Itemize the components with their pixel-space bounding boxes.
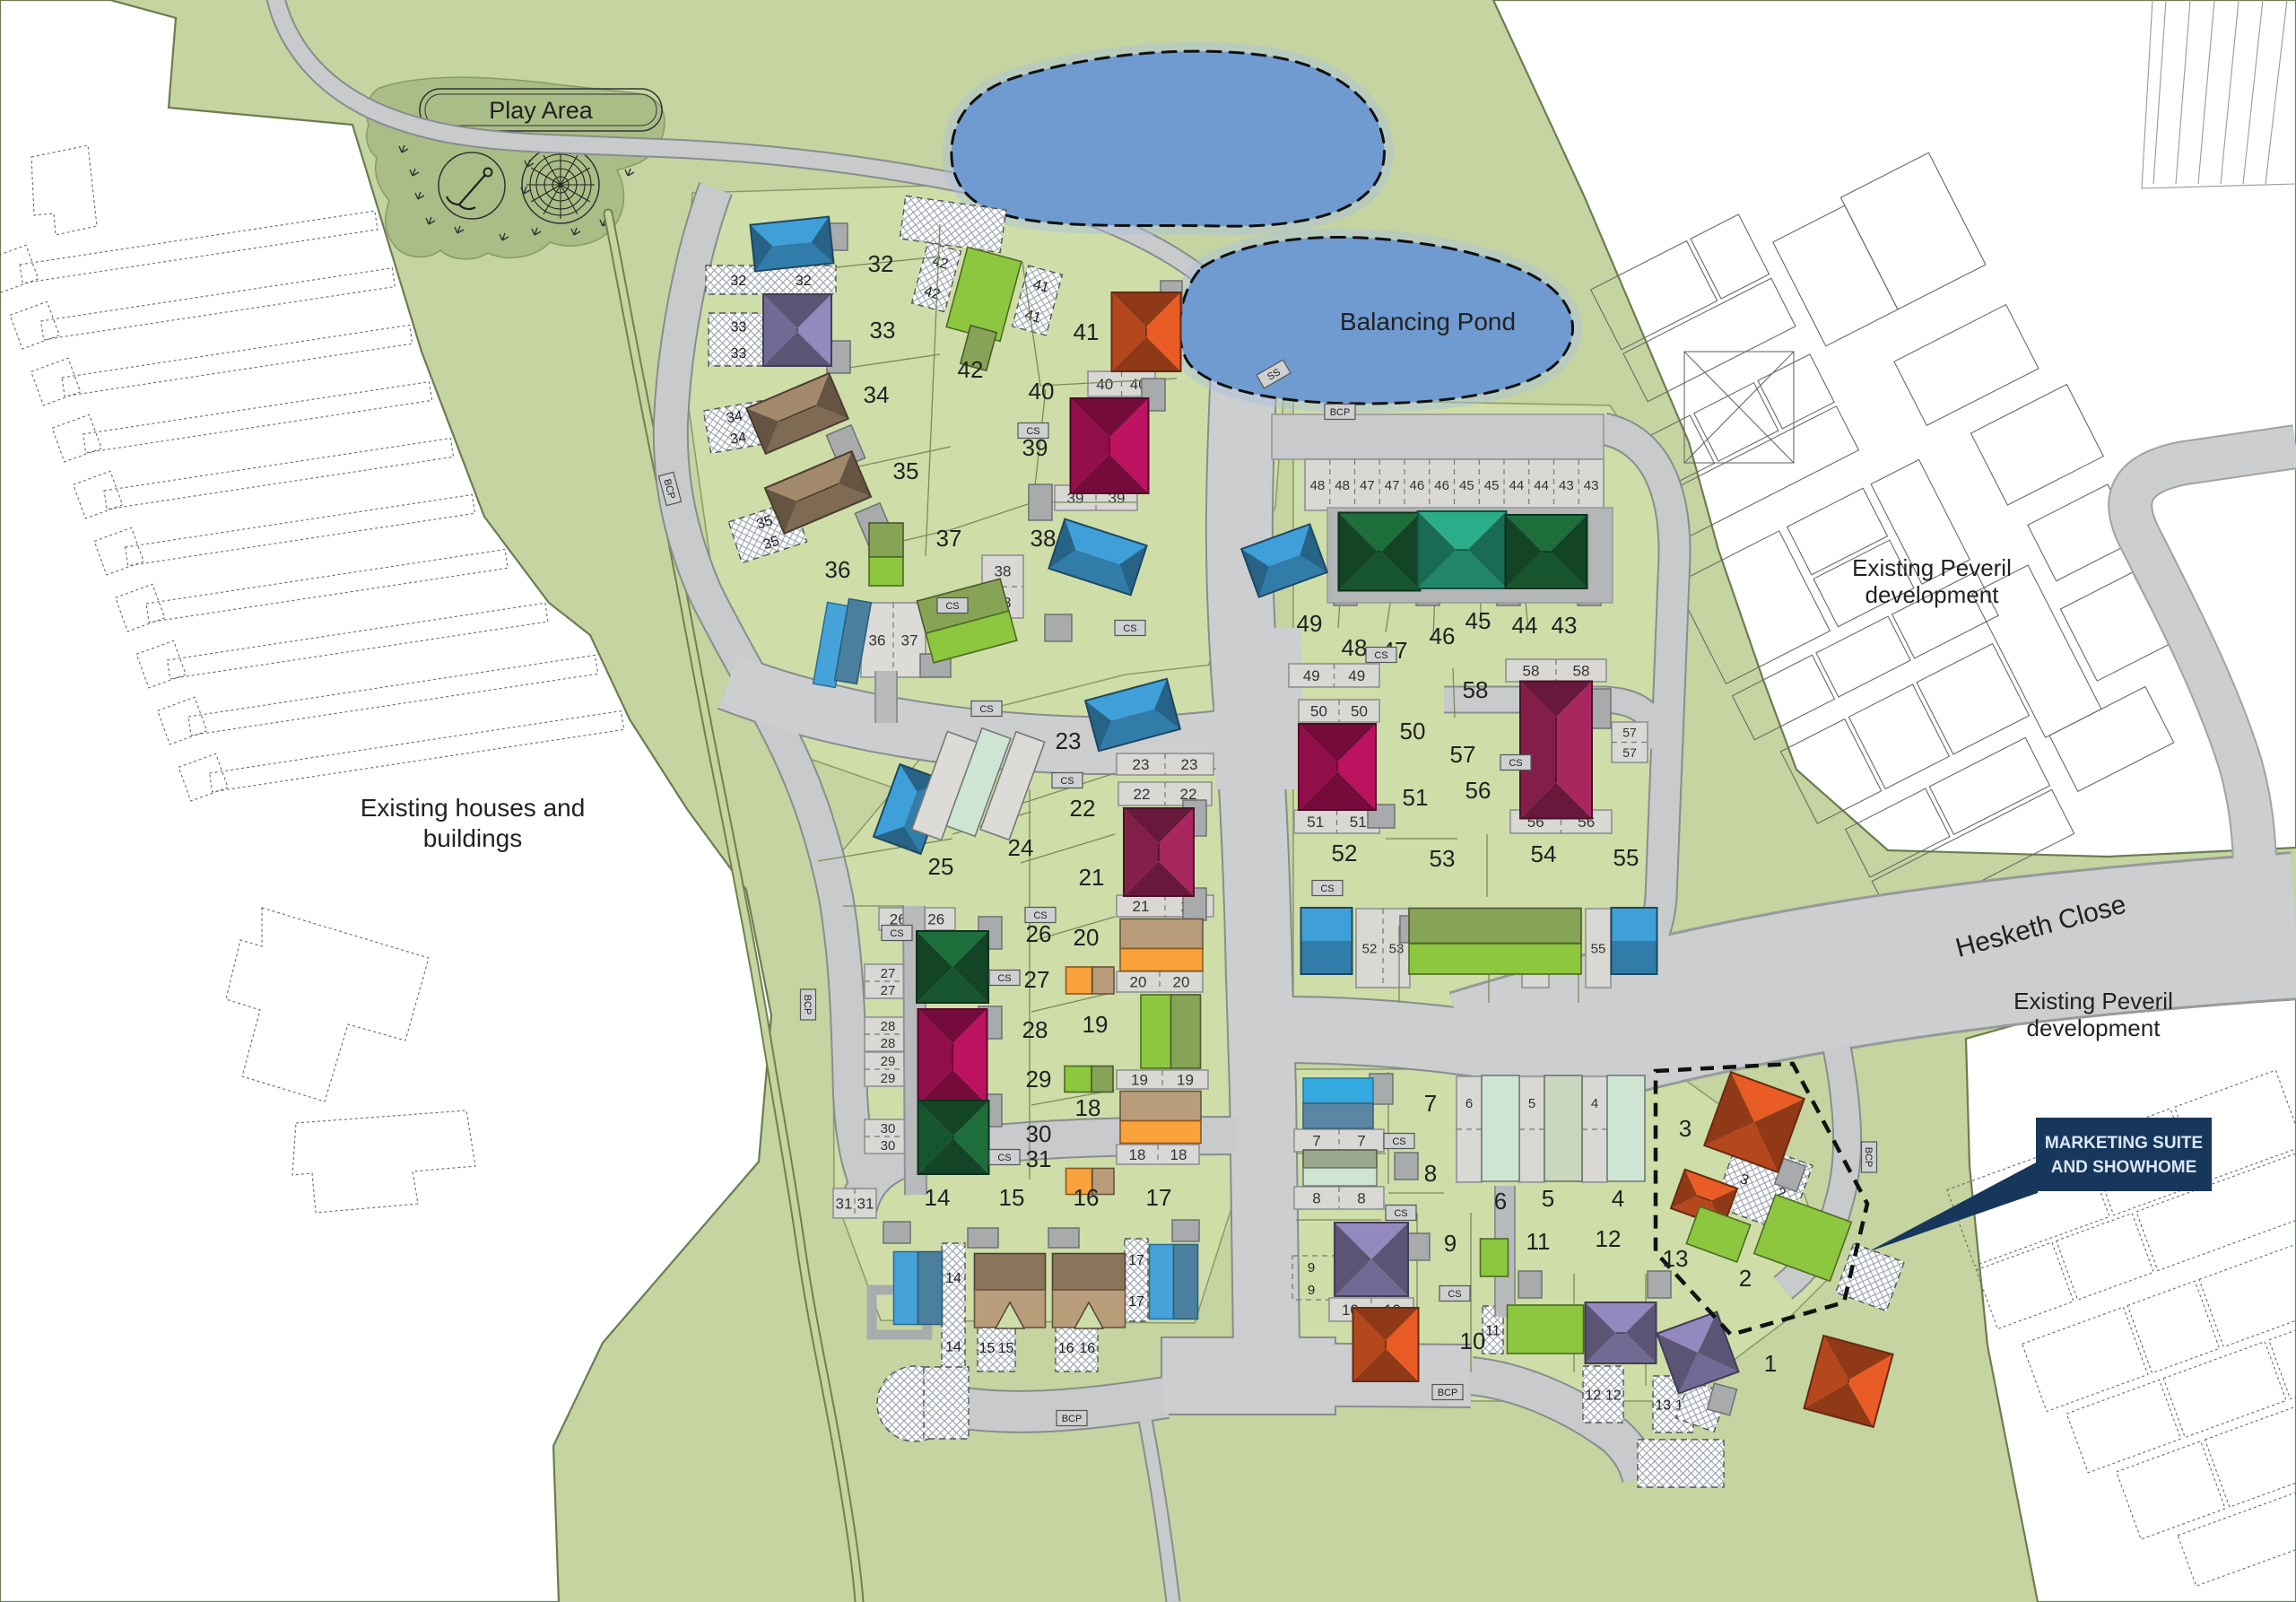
svg-text:41: 41: [1074, 318, 1100, 345]
svg-text:24: 24: [1008, 834, 1034, 861]
svg-text:29: 29: [881, 1054, 896, 1069]
svg-text:55: 55: [1591, 941, 1606, 956]
svg-text:42: 42: [958, 356, 984, 383]
svg-text:Play Area: Play Area: [489, 97, 594, 124]
svg-text:38: 38: [995, 563, 1012, 580]
svg-text:23: 23: [1133, 756, 1150, 773]
svg-text:45: 45: [1459, 478, 1474, 493]
svg-text:49: 49: [1348, 667, 1365, 684]
svg-text:CS: CS: [1448, 1289, 1461, 1300]
svg-text:CS: CS: [890, 928, 903, 939]
svg-text:23: 23: [1056, 727, 1082, 754]
svg-text:32: 32: [868, 250, 894, 277]
svg-text:32: 32: [730, 274, 746, 289]
svg-text:31: 31: [836, 1196, 853, 1213]
svg-text:CS: CS: [1123, 623, 1136, 634]
svg-text:development: development: [1865, 581, 2000, 608]
svg-text:buildings: buildings: [423, 824, 523, 852]
svg-text:CS: CS: [1320, 884, 1334, 894]
svg-text:19: 19: [1083, 1011, 1109, 1038]
svg-text:CS: CS: [997, 1153, 1011, 1163]
svg-text:50: 50: [1310, 703, 1327, 720]
svg-text:48: 48: [1310, 478, 1326, 493]
svg-text:43: 43: [1559, 478, 1574, 493]
svg-text:16: 16: [1079, 1341, 1095, 1356]
svg-text:51: 51: [1350, 814, 1367, 831]
svg-text:17: 17: [1146, 1184, 1172, 1211]
svg-text:47: 47: [1385, 478, 1400, 493]
svg-text:45: 45: [1484, 478, 1500, 493]
svg-text:BCP: BCP: [1062, 1414, 1083, 1424]
svg-text:52: 52: [1332, 840, 1358, 866]
svg-text:7: 7: [1312, 1133, 1320, 1150]
svg-text:18: 18: [1075, 1094, 1101, 1121]
svg-text:27: 27: [881, 983, 896, 998]
svg-text:4: 4: [1591, 1096, 1598, 1111]
svg-text:8: 8: [1357, 1190, 1365, 1207]
svg-text:13: 13: [1655, 1397, 1671, 1413]
svg-text:8: 8: [1424, 1160, 1437, 1187]
svg-text:4: 4: [1612, 1185, 1624, 1212]
svg-text:BCP: BCP: [802, 995, 813, 1015]
svg-text:34: 34: [726, 408, 744, 426]
svg-text:26: 26: [1026, 920, 1052, 947]
svg-text:6: 6: [1465, 1096, 1473, 1111]
svg-text:57: 57: [1622, 725, 1637, 739]
svg-text:7: 7: [1357, 1133, 1365, 1150]
svg-text:57: 57: [1450, 741, 1476, 768]
svg-text:52: 52: [1362, 941, 1378, 956]
svg-text:20: 20: [1130, 974, 1147, 991]
svg-text:CS: CS: [1394, 1208, 1407, 1219]
svg-text:16: 16: [1074, 1184, 1100, 1211]
svg-text:35: 35: [893, 457, 919, 484]
svg-text:21: 21: [1079, 864, 1105, 891]
svg-text:2: 2: [1739, 1265, 1752, 1292]
svg-text:BCP: BCP: [1438, 1388, 1458, 1398]
svg-text:53: 53: [1389, 941, 1405, 956]
svg-text:18: 18: [1170, 1146, 1187, 1163]
svg-text:17: 17: [1128, 1253, 1144, 1268]
svg-text:55: 55: [1613, 844, 1639, 871]
svg-text:49: 49: [1303, 667, 1320, 684]
svg-text:Existing houses and: Existing houses and: [361, 794, 586, 822]
svg-text:21: 21: [1133, 898, 1150, 915]
svg-text:MARKETING SUITE: MARKETING SUITE: [2045, 1134, 2203, 1153]
svg-text:Balancing Pond: Balancing Pond: [1340, 308, 1516, 335]
svg-text:30: 30: [1026, 1120, 1052, 1147]
svg-text:31: 31: [857, 1196, 874, 1213]
svg-text:33: 33: [731, 346, 747, 361]
svg-text:58: 58: [1573, 663, 1590, 680]
svg-text:20: 20: [1074, 924, 1100, 951]
svg-text:58: 58: [1463, 676, 1489, 703]
svg-text:40: 40: [1029, 378, 1055, 405]
svg-text:9: 9: [1444, 1230, 1457, 1257]
svg-text:57: 57: [1622, 745, 1637, 760]
svg-text:46: 46: [1430, 623, 1456, 649]
svg-text:15: 15: [979, 1341, 996, 1356]
svg-text:37: 37: [936, 525, 962, 552]
svg-text:44: 44: [1534, 478, 1549, 493]
svg-text:43: 43: [1552, 612, 1578, 639]
svg-text:28: 28: [881, 1019, 896, 1034]
svg-text:49: 49: [1297, 610, 1323, 637]
svg-text:7: 7: [1424, 1090, 1437, 1117]
svg-text:CS: CS: [997, 973, 1011, 984]
svg-text:12: 12: [1596, 1225, 1622, 1252]
svg-text:12: 12: [1585, 1388, 1601, 1403]
svg-text:48: 48: [1335, 478, 1350, 493]
svg-text:CS: CS: [1033, 910, 1047, 921]
svg-text:11: 11: [1485, 1323, 1500, 1338]
svg-text:27: 27: [1024, 966, 1050, 993]
svg-text:14: 14: [945, 1340, 961, 1355]
svg-text:Existing Peveril: Existing Peveril: [1852, 554, 2012, 581]
svg-text:14: 14: [945, 1271, 961, 1286]
svg-text:AND SHOWHOME: AND SHOWHOME: [2051, 1158, 2197, 1177]
svg-text:34: 34: [729, 430, 748, 448]
svg-text:53: 53: [1430, 845, 1456, 872]
svg-text:18: 18: [1129, 1146, 1146, 1163]
svg-text:44: 44: [1509, 478, 1525, 493]
svg-text:29: 29: [881, 1071, 896, 1086]
svg-text:56: 56: [1465, 777, 1492, 804]
svg-text:CS: CS: [1392, 1136, 1405, 1147]
svg-text:46: 46: [1410, 478, 1425, 493]
svg-text:9: 9: [1308, 1260, 1315, 1276]
svg-text:23: 23: [1181, 756, 1198, 773]
svg-text:51: 51: [1307, 814, 1324, 831]
svg-text:16: 16: [1058, 1341, 1074, 1356]
svg-text:CS: CS: [1509, 758, 1522, 769]
svg-text:47: 47: [1360, 478, 1375, 493]
svg-text:26: 26: [927, 911, 944, 928]
svg-text:20: 20: [1173, 974, 1190, 991]
svg-text:9: 9: [1308, 1283, 1315, 1298]
svg-text:36: 36: [825, 556, 851, 583]
svg-text:33: 33: [870, 317, 896, 344]
svg-text:11: 11: [1526, 1228, 1551, 1255]
svg-text:43: 43: [1584, 478, 1599, 493]
svg-text:48: 48: [1342, 634, 1368, 661]
svg-text:1: 1: [1764, 1350, 1777, 1377]
svg-text:Existing Peveril: Existing Peveril: [2013, 988, 2173, 1014]
svg-text:37: 37: [901, 632, 918, 649]
svg-text:44: 44: [1512, 612, 1538, 639]
svg-text:3: 3: [1679, 1115, 1692, 1142]
svg-text:19: 19: [1131, 1072, 1148, 1089]
svg-text:5: 5: [1542, 1185, 1554, 1212]
svg-text:BCP: BCP: [1330, 407, 1351, 418]
svg-text:28: 28: [1022, 1016, 1048, 1043]
svg-text:CS: CS: [1060, 776, 1074, 787]
svg-text:38: 38: [1031, 525, 1057, 552]
svg-text:development: development: [2027, 1014, 2161, 1041]
svg-text:36: 36: [869, 632, 886, 649]
svg-text:33: 33: [731, 320, 747, 335]
svg-text:29: 29: [1026, 1066, 1052, 1093]
svg-text:8: 8: [1312, 1190, 1320, 1207]
svg-text:30: 30: [881, 1138, 896, 1154]
svg-text:15: 15: [998, 1341, 1014, 1356]
svg-text:CS: CS: [979, 704, 993, 715]
svg-text:51: 51: [1403, 784, 1429, 811]
svg-text:15: 15: [999, 1184, 1025, 1211]
svg-text:12: 12: [1605, 1388, 1622, 1403]
svg-text:CS: CS: [945, 601, 959, 612]
svg-text:CS: CS: [1374, 650, 1387, 661]
svg-text:50: 50: [1400, 718, 1426, 744]
svg-text:40: 40: [1096, 376, 1113, 393]
svg-text:10: 10: [1460, 1328, 1486, 1354]
svg-text:50: 50: [1351, 703, 1368, 720]
svg-text:13: 13: [1663, 1245, 1689, 1272]
svg-text:28: 28: [881, 1036, 896, 1051]
svg-text:30: 30: [881, 1121, 896, 1136]
svg-text:6: 6: [1494, 1188, 1507, 1215]
svg-text:25: 25: [928, 853, 954, 880]
svg-text:27: 27: [881, 966, 896, 981]
svg-text:31: 31: [1026, 1145, 1052, 1172]
svg-text:5: 5: [1528, 1096, 1535, 1111]
svg-text:17: 17: [1128, 1294, 1144, 1310]
svg-text:58: 58: [1523, 663, 1540, 680]
svg-text:BCP: BCP: [1863, 1147, 1874, 1168]
svg-text:45: 45: [1465, 607, 1492, 634]
svg-text:32: 32: [796, 274, 812, 289]
svg-text:19: 19: [1177, 1072, 1194, 1089]
svg-text:46: 46: [1434, 478, 1449, 493]
svg-text:34: 34: [864, 381, 890, 408]
svg-text:22: 22: [1134, 786, 1151, 803]
svg-text:CS: CS: [1026, 426, 1039, 437]
svg-text:54: 54: [1531, 840, 1557, 867]
svg-text:14: 14: [925, 1184, 951, 1211]
svg-text:22: 22: [1070, 795, 1096, 822]
